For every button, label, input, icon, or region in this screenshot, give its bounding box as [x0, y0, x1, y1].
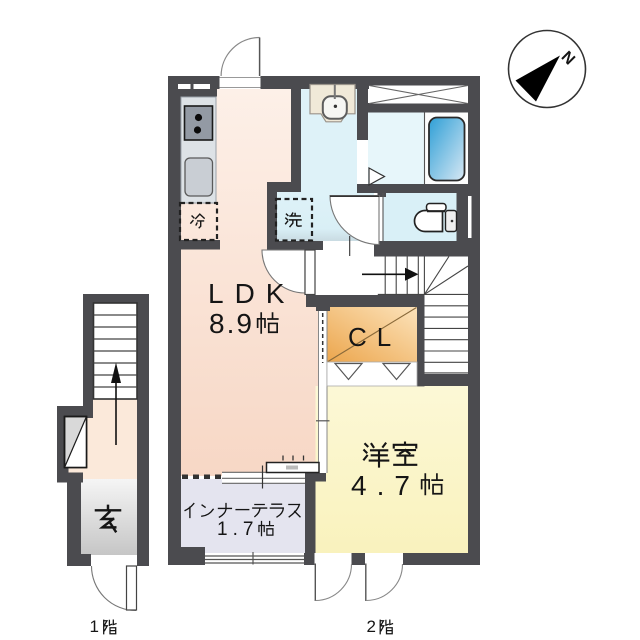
svg-text:2: 2	[367, 617, 376, 636]
svg-text:CL: CL	[348, 322, 401, 352]
svg-text:8.9: 8.9	[209, 308, 254, 339]
svg-text:1: 1	[90, 617, 99, 636]
svg-text:4.7: 4.7	[351, 470, 420, 501]
svg-text:LDK: LDK	[208, 278, 295, 309]
svg-text:1.7: 1.7	[217, 519, 258, 540]
